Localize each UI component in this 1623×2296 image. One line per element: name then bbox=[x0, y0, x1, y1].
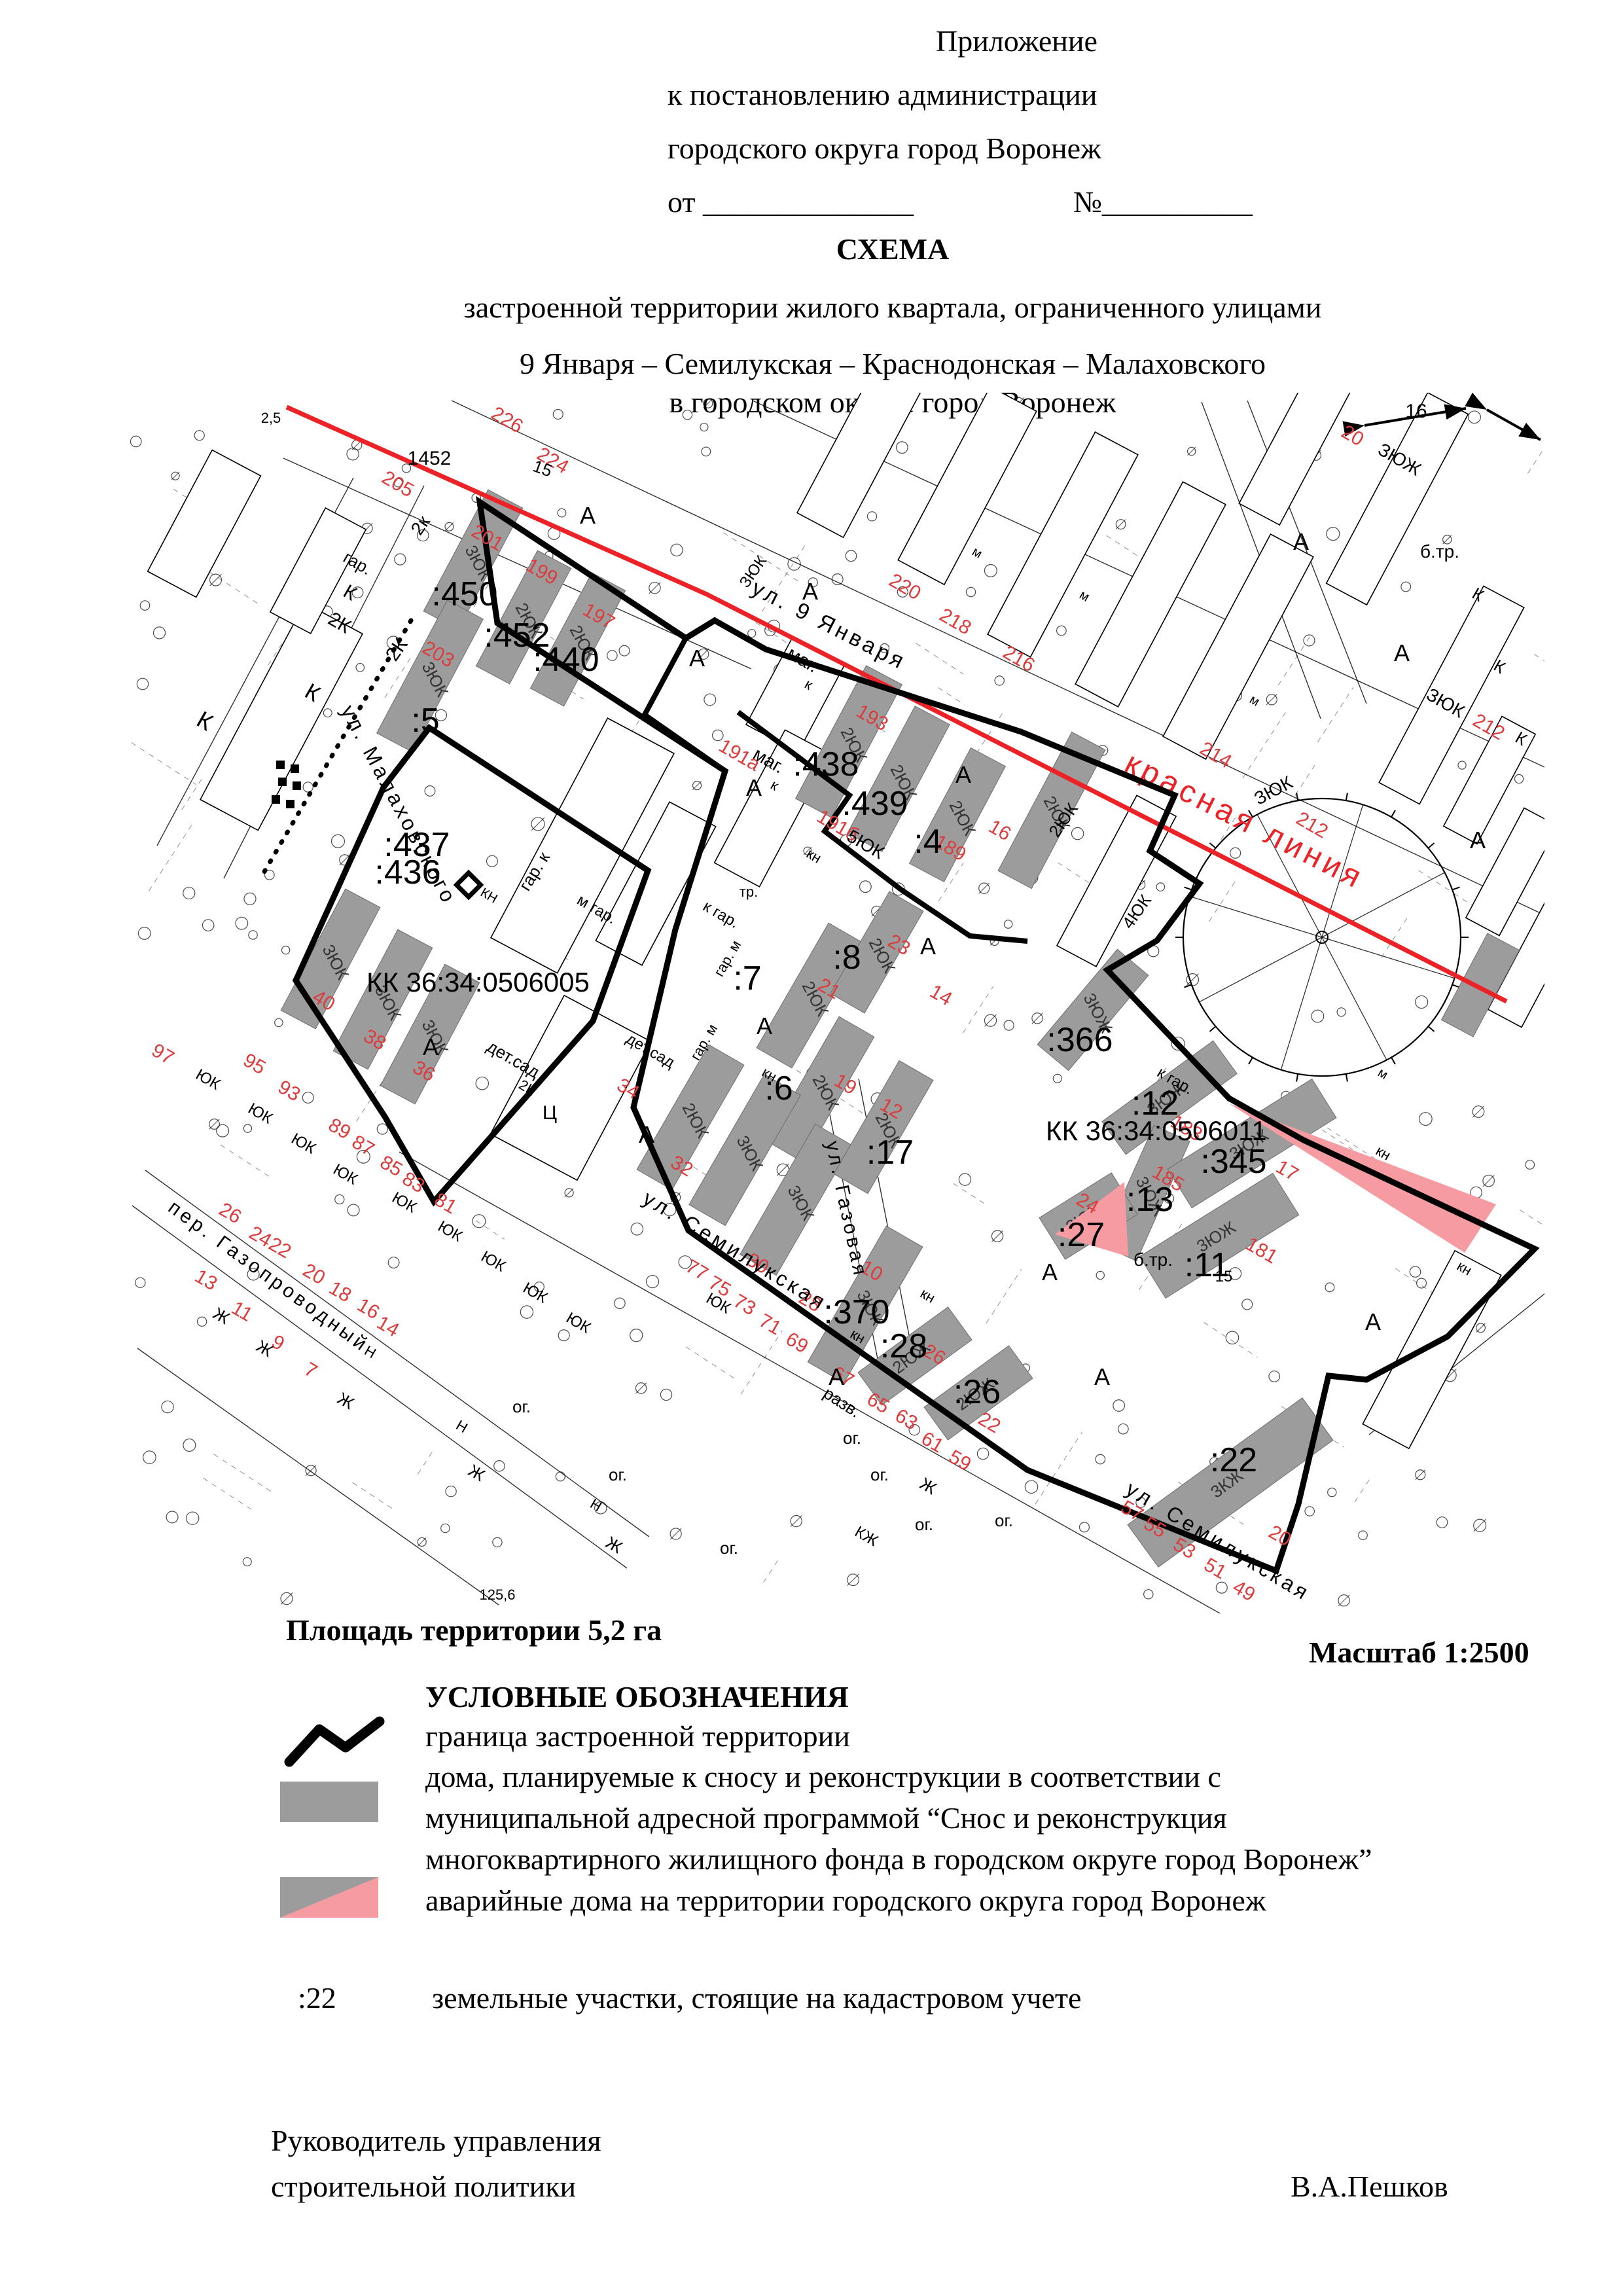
svg-text:14: 14 bbox=[926, 980, 955, 1010]
svg-text:А: А bbox=[829, 1363, 844, 1390]
svg-text:18: 18 bbox=[325, 1277, 355, 1306]
svg-text:ЮК: ЮК bbox=[563, 1309, 594, 1337]
svg-text:КН: КН bbox=[478, 886, 500, 906]
svg-text:7: 7 bbox=[300, 1358, 321, 1382]
svg-text:А: А bbox=[423, 1033, 438, 1060]
svg-text:ог.: ог. bbox=[870, 1465, 889, 1484]
svg-text:КК 36:34:0506011: КК 36:34:0506011 bbox=[1046, 1115, 1267, 1146]
svg-text:63: 63 bbox=[891, 1405, 921, 1434]
svg-text:Ц: Ц bbox=[543, 1102, 557, 1124]
territory-area-label: Площадь территории 5,2 га bbox=[286, 1615, 662, 1645]
svg-text:ЮК: ЮК bbox=[330, 1160, 361, 1189]
svg-text:ЮК: ЮК bbox=[288, 1130, 319, 1158]
svg-text:Н: Н bbox=[454, 1417, 471, 1437]
svg-text:А: А bbox=[1365, 1308, 1381, 1335]
svg-text:Ж: Ж bbox=[917, 1473, 940, 1498]
svg-text:ЮК: ЮК bbox=[435, 1217, 465, 1246]
svg-text:А: А bbox=[1293, 528, 1309, 555]
svg-text:26: 26 bbox=[215, 1198, 245, 1228]
emergency-building-symbol bbox=[280, 1877, 378, 1918]
svg-text:125,6: 125,6 bbox=[479, 1587, 515, 1603]
svg-text:ЮК: ЮК bbox=[192, 1066, 223, 1094]
svg-text::438: :438 bbox=[793, 745, 859, 783]
svg-text::436: :436 bbox=[374, 853, 440, 891]
svg-text:220: 220 bbox=[885, 569, 925, 605]
svg-text:А: А bbox=[746, 774, 762, 801]
svg-text:А: А bbox=[1042, 1259, 1058, 1285]
signer-position-line1: Руководитель управления bbox=[271, 2126, 601, 2156]
svg-text:А: А bbox=[1394, 639, 1410, 666]
title-line-2: застроенной территории жилого квартала, … bbox=[464, 293, 1322, 323]
header-line-3: городского округа город Воронеж bbox=[668, 134, 1101, 164]
svg-text:ог.: ог. bbox=[512, 1397, 531, 1416]
svg-text::4: :4 bbox=[914, 823, 942, 861]
svg-text:тр.: тр. bbox=[740, 884, 758, 900]
svg-text:16: 16 bbox=[985, 816, 1014, 845]
svg-text::26: :26 bbox=[954, 1373, 1001, 1411]
map-scale-label: Масштаб 1:2500 bbox=[1309, 1638, 1529, 1668]
boundary-line-symbol bbox=[281, 1715, 406, 1774]
svg-text:А: А bbox=[1470, 827, 1486, 853]
svg-text:97: 97 bbox=[148, 1039, 177, 1069]
svg-text::27: :27 bbox=[1058, 1216, 1105, 1254]
svg-text:218: 218 bbox=[936, 604, 975, 639]
svg-text:б.тр.: б.тр. bbox=[1420, 541, 1459, 562]
svg-text:А: А bbox=[580, 502, 596, 529]
svg-text:95: 95 bbox=[240, 1049, 269, 1079]
svg-text:93: 93 bbox=[274, 1076, 304, 1105]
svg-text:13: 13 bbox=[191, 1265, 221, 1295]
svg-text::8: :8 bbox=[832, 939, 861, 977]
svg-text:Ж: Ж bbox=[603, 1532, 626, 1557]
svg-text:А: А bbox=[1094, 1363, 1110, 1390]
legend-item-emergency: аварийные дома на территории городского … bbox=[425, 1886, 1266, 1916]
header-line-2: к постановлению администрации bbox=[668, 80, 1097, 110]
svg-text::345: :345 bbox=[1200, 1143, 1266, 1181]
svg-text::366: :366 bbox=[1046, 1021, 1113, 1059]
signer-position-line2: строительной политики bbox=[271, 2172, 576, 2202]
svg-text:к гар.: к гар. bbox=[700, 897, 742, 932]
svg-text:14: 14 bbox=[373, 1312, 402, 1341]
svg-text::440: :440 bbox=[533, 641, 599, 679]
svg-text:м: м bbox=[1247, 692, 1262, 709]
svg-text:дет.сад: дет.сад bbox=[484, 1036, 543, 1082]
svg-text:К: К bbox=[340, 581, 361, 605]
svg-text:73: 73 bbox=[730, 1290, 759, 1319]
svg-text::17: :17 bbox=[866, 1134, 914, 1172]
svg-text::11: :11 bbox=[1185, 1246, 1229, 1284]
signer-name: В.А.Пешков bbox=[1291, 2172, 1448, 2202]
svg-text:ог.: ог. bbox=[609, 1465, 627, 1484]
svg-text:м: м bbox=[970, 545, 985, 562]
svg-text:89: 89 bbox=[325, 1114, 354, 1143]
svg-text:А: А bbox=[955, 761, 971, 788]
svg-text:К: К bbox=[192, 706, 218, 736]
svg-text:ог.: ог. bbox=[720, 1538, 738, 1558]
svg-text:Ж: Ж bbox=[210, 1303, 234, 1328]
legend-item-parcels: земельные участки, стоящие на кадастрово… bbox=[432, 1983, 1081, 2013]
svg-text:226: 226 bbox=[488, 403, 527, 438]
demolition-building-symbol bbox=[280, 1782, 378, 1822]
svg-text:ог.: ог. bbox=[995, 1511, 1013, 1530]
legend-item-demolition-line1: дома, планируемые к сносу и реконструкци… bbox=[425, 1762, 1221, 1792]
svg-text:ЮК: ЮК bbox=[245, 1100, 276, 1128]
legend-heading: УСЛОВНЫЕ ОБОЗНАЧЕНИЯ bbox=[425, 1682, 849, 1712]
svg-text:59: 59 bbox=[945, 1446, 974, 1475]
svg-text:ЮК: ЮК bbox=[703, 1289, 734, 1318]
svg-text::370: :370 bbox=[823, 1293, 889, 1331]
svg-text:кн: кн bbox=[804, 845, 824, 867]
svg-text:кн: кн bbox=[918, 1285, 938, 1306]
svg-text:м: м bbox=[1077, 588, 1092, 605]
svg-text::7: :7 bbox=[733, 960, 761, 997]
svg-text:А: А bbox=[757, 1013, 772, 1039]
svg-text:ог.: ог. bbox=[915, 1515, 933, 1534]
svg-text::6: :6 bbox=[764, 1069, 793, 1107]
svg-text:б.тр.: б.тр. bbox=[1133, 1249, 1173, 1270]
svg-text:81: 81 bbox=[431, 1189, 460, 1218]
svg-text:1452: 1452 bbox=[408, 448, 452, 469]
svg-text:69: 69 bbox=[782, 1328, 811, 1357]
page-title: СХЕМА bbox=[836, 234, 950, 264]
svg-text:ог.: ог. bbox=[843, 1428, 861, 1448]
svg-text:16: 16 bbox=[353, 1294, 383, 1323]
svg-text::5: :5 bbox=[411, 702, 439, 740]
svg-text::22: :22 bbox=[1210, 1441, 1257, 1479]
svg-text:205: 205 bbox=[378, 467, 418, 502]
header-attachment-label: Приложение bbox=[936, 26, 1097, 56]
svg-text:А: А bbox=[639, 1121, 654, 1148]
legend-item-boundary: граница застроенной территории bbox=[425, 1721, 850, 1751]
svg-text:85: 85 bbox=[376, 1151, 406, 1181]
svg-text:А: А bbox=[920, 933, 936, 960]
svg-text::13: :13 bbox=[1126, 1181, 1173, 1219]
header-date-blank: от ______________ bbox=[668, 187, 914, 217]
legend-item-demolition-line2: муниципальной адресной программой “Снос … bbox=[425, 1803, 1227, 1833]
cadastral-map: 3ЮК2ЮК2ЮК3ЮК3ЮК3ЮК3ЮК2ЮК2ЮК2ЮК2ЮК2ЮК2ЮК2… bbox=[118, 393, 1544, 1613]
svg-text:Н: Н bbox=[588, 1496, 605, 1515]
svg-text:71: 71 bbox=[755, 1310, 785, 1339]
svg-text:77: 77 bbox=[682, 1255, 711, 1285]
svg-text:ЗЮК: ЗЮК bbox=[1251, 772, 1296, 809]
title-line-3: 9 Января – Семилукская – Краснодонская –… bbox=[520, 349, 1266, 379]
svg-text:Ж: Ж bbox=[334, 1388, 358, 1413]
legend-item-demolition-line3: многоквартирного жилищного фонда в город… bbox=[425, 1844, 1372, 1874]
legend-parcel-symbol: :22 bbox=[298, 1983, 336, 2013]
svg-text::450: :450 bbox=[431, 575, 497, 613]
svg-text:КК 36:34:0506005: КК 36:34:0506005 bbox=[366, 967, 590, 997]
svg-text::28: :28 bbox=[880, 1327, 927, 1365]
svg-text:16: 16 bbox=[1405, 401, 1427, 422]
document-page: { "doc": { "header": { "line1": "Приложе… bbox=[0, 0, 1623, 2296]
svg-text:м: м bbox=[1376, 1066, 1391, 1083]
svg-text:2,5: 2,5 bbox=[261, 410, 281, 426]
header-number-blank: №__________ bbox=[1073, 187, 1253, 217]
svg-text:20: 20 bbox=[299, 1259, 329, 1289]
svg-text:А: А bbox=[689, 645, 705, 672]
svg-text:ЮК: ЮК bbox=[478, 1247, 508, 1276]
svg-text:ЮК: ЮК bbox=[520, 1279, 550, 1307]
svg-text:КЖ: КЖ bbox=[851, 1523, 881, 1550]
svg-text:87: 87 bbox=[348, 1131, 378, 1160]
svg-text:20: 20 bbox=[1338, 421, 1367, 450]
svg-text:49: 49 bbox=[1229, 1576, 1258, 1605]
svg-text::439: :439 bbox=[842, 785, 908, 823]
